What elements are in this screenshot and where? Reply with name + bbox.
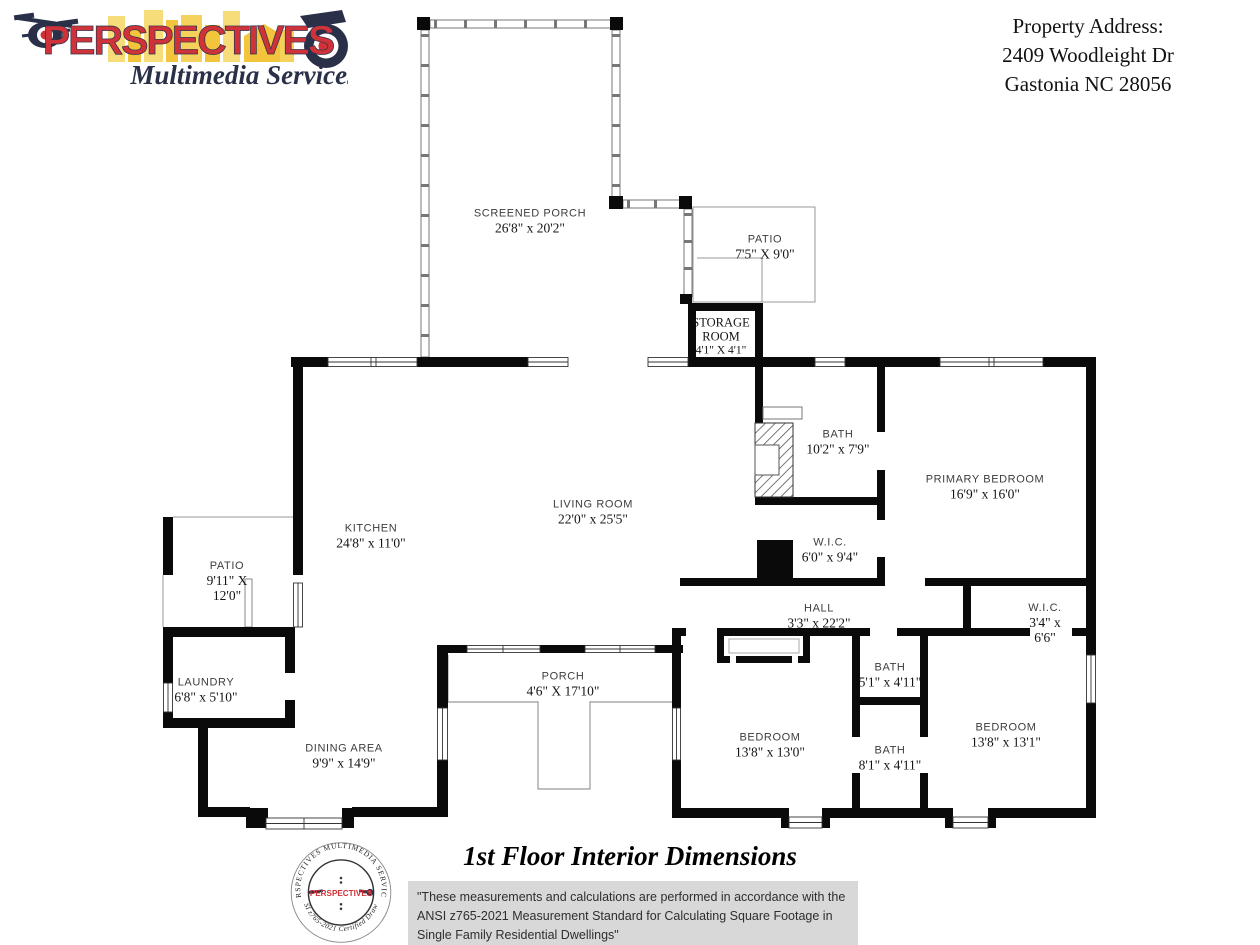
- room-name: SCREENED PORCH: [474, 209, 586, 221]
- room-name: KITCHEN: [336, 524, 405, 536]
- room-dims: 13'8" x 13'0": [735, 745, 805, 759]
- room-dims: 13'8" x 13'1": [971, 735, 1041, 749]
- room-name: STORAGE: [692, 316, 749, 329]
- room-label-bath-hall: BATH 5'1" x 4'11": [859, 663, 922, 690]
- room-name: BATH: [806, 430, 869, 442]
- room-label-hall: HALL 3'3" x 22'2": [787, 604, 850, 631]
- room-dims: 16'9" x 16'0": [926, 487, 1045, 501]
- floor-plan-drawing: [0, 0, 1260, 945]
- room-label-storage-room: STORAGE ROOM 4'1" X 4'1": [692, 315, 749, 356]
- fireplace: [755, 423, 793, 497]
- windows: [164, 358, 1096, 830]
- room-dims: 24'8" x 11'0": [336, 536, 405, 550]
- room-dims: 9'11" X: [207, 574, 248, 588]
- walls: [163, 303, 1096, 828]
- room-label-kitchen: KITCHEN 24'8" x 11'0": [336, 524, 405, 551]
- room-dims: 7'5" X 9'0": [735, 247, 794, 261]
- room-label-screened-porch: SCREENED PORCH 26'8" x 20'2": [474, 209, 586, 236]
- room-name: W.I.C.: [1028, 603, 1062, 615]
- room-name: BATH: [859, 746, 922, 758]
- room-label-primary-wic: W.I.C. 6'0" x 9'4": [802, 538, 858, 565]
- room-name: LIVING ROOM: [553, 500, 633, 512]
- ansi-disclaimer: "These measurements and calculations are…: [408, 881, 858, 945]
- room-name: BATH: [859, 663, 922, 675]
- room-name: PATIO: [735, 235, 794, 247]
- seal-center-text: PERSPECTIVES: [310, 889, 373, 898]
- room-dims: 8'1" x 4'11": [859, 758, 922, 772]
- room-dims: 6'6": [1028, 631, 1062, 645]
- room-label-porch: PORCH 4'6" X 17'10": [527, 672, 600, 699]
- room-dims: 3'3" x 22'2": [787, 616, 850, 630]
- room-dims: 6'8" x 5'10": [174, 690, 237, 704]
- room-dims: 5'1" x 4'11": [859, 675, 922, 689]
- bath-vanity: [763, 407, 802, 419]
- room-label-living-room: LIVING ROOM 22'0" x 25'5": [553, 500, 633, 527]
- ansi-disclaimer-text: "These measurements and calculations are…: [417, 890, 845, 942]
- room-label-bedroom-right: BEDROOM 13'8" x 13'1": [971, 723, 1041, 750]
- room-name: DINING AREA: [305, 744, 383, 756]
- room-dims: 6'0" x 9'4": [802, 550, 858, 564]
- room-name: BEDROOM: [735, 733, 805, 745]
- room-dims: 9'9" x 14'9": [305, 756, 383, 770]
- room-dims: 3'4" x: [1028, 616, 1062, 630]
- room-name: PRIMARY BEDROOM: [926, 475, 1045, 487]
- room-name: ROOM: [692, 330, 749, 343]
- room-label-wic-2: W.I.C. 3'4" x 6'6": [1028, 603, 1062, 645]
- room-label-laundry: LAUNDRY 6'8" x 5'10": [174, 678, 237, 705]
- room-label-primary-bath: BATH 10'2" x 7'9": [806, 430, 869, 457]
- room-dims: 26'8" x 20'2": [474, 221, 586, 235]
- room-dims: 12'0": [207, 589, 248, 603]
- room-name: BEDROOM: [971, 723, 1041, 735]
- room-name: W.I.C.: [802, 538, 858, 550]
- room-name: LAUNDRY: [174, 678, 237, 690]
- room-dims: 4'6" X 17'10": [527, 684, 600, 698]
- room-dims: 22'0" x 25'5": [553, 512, 633, 526]
- room-dims: 10'2" x 7'9": [806, 442, 869, 456]
- room-label-bath-2: BATH 8'1" x 4'11": [859, 746, 922, 773]
- page-title: 1st Floor Interior Dimensions: [330, 841, 930, 872]
- room-label-patio-left: PATIO 9'11" X 12'0": [207, 561, 248, 603]
- room-label-bedroom-left: BEDROOM 13'8" x 13'0": [735, 733, 805, 760]
- room-label-patio-upper: PATIO 7'5" X 9'0": [735, 235, 794, 262]
- room-name: PORCH: [527, 672, 600, 684]
- room-name: HALL: [787, 604, 850, 616]
- screened-porch-walls: [417, 17, 692, 357]
- certification-seal: PERSPECTIVES MULTIMEDIA SERVICES ANSI z7…: [283, 840, 399, 945]
- floor-plan-page: PERSPECTIVES Multimedia Services Propert…: [0, 0, 1260, 945]
- room-name: PATIO: [207, 561, 248, 573]
- closet-interior-line: [729, 639, 799, 653]
- room-label-primary-bedroom: PRIMARY BEDROOM 16'9" x 16'0": [926, 475, 1045, 502]
- room-dims: 4'1" X 4'1": [692, 345, 749, 357]
- room-label-dining-area: DINING AREA 9'9" x 14'9": [305, 744, 383, 771]
